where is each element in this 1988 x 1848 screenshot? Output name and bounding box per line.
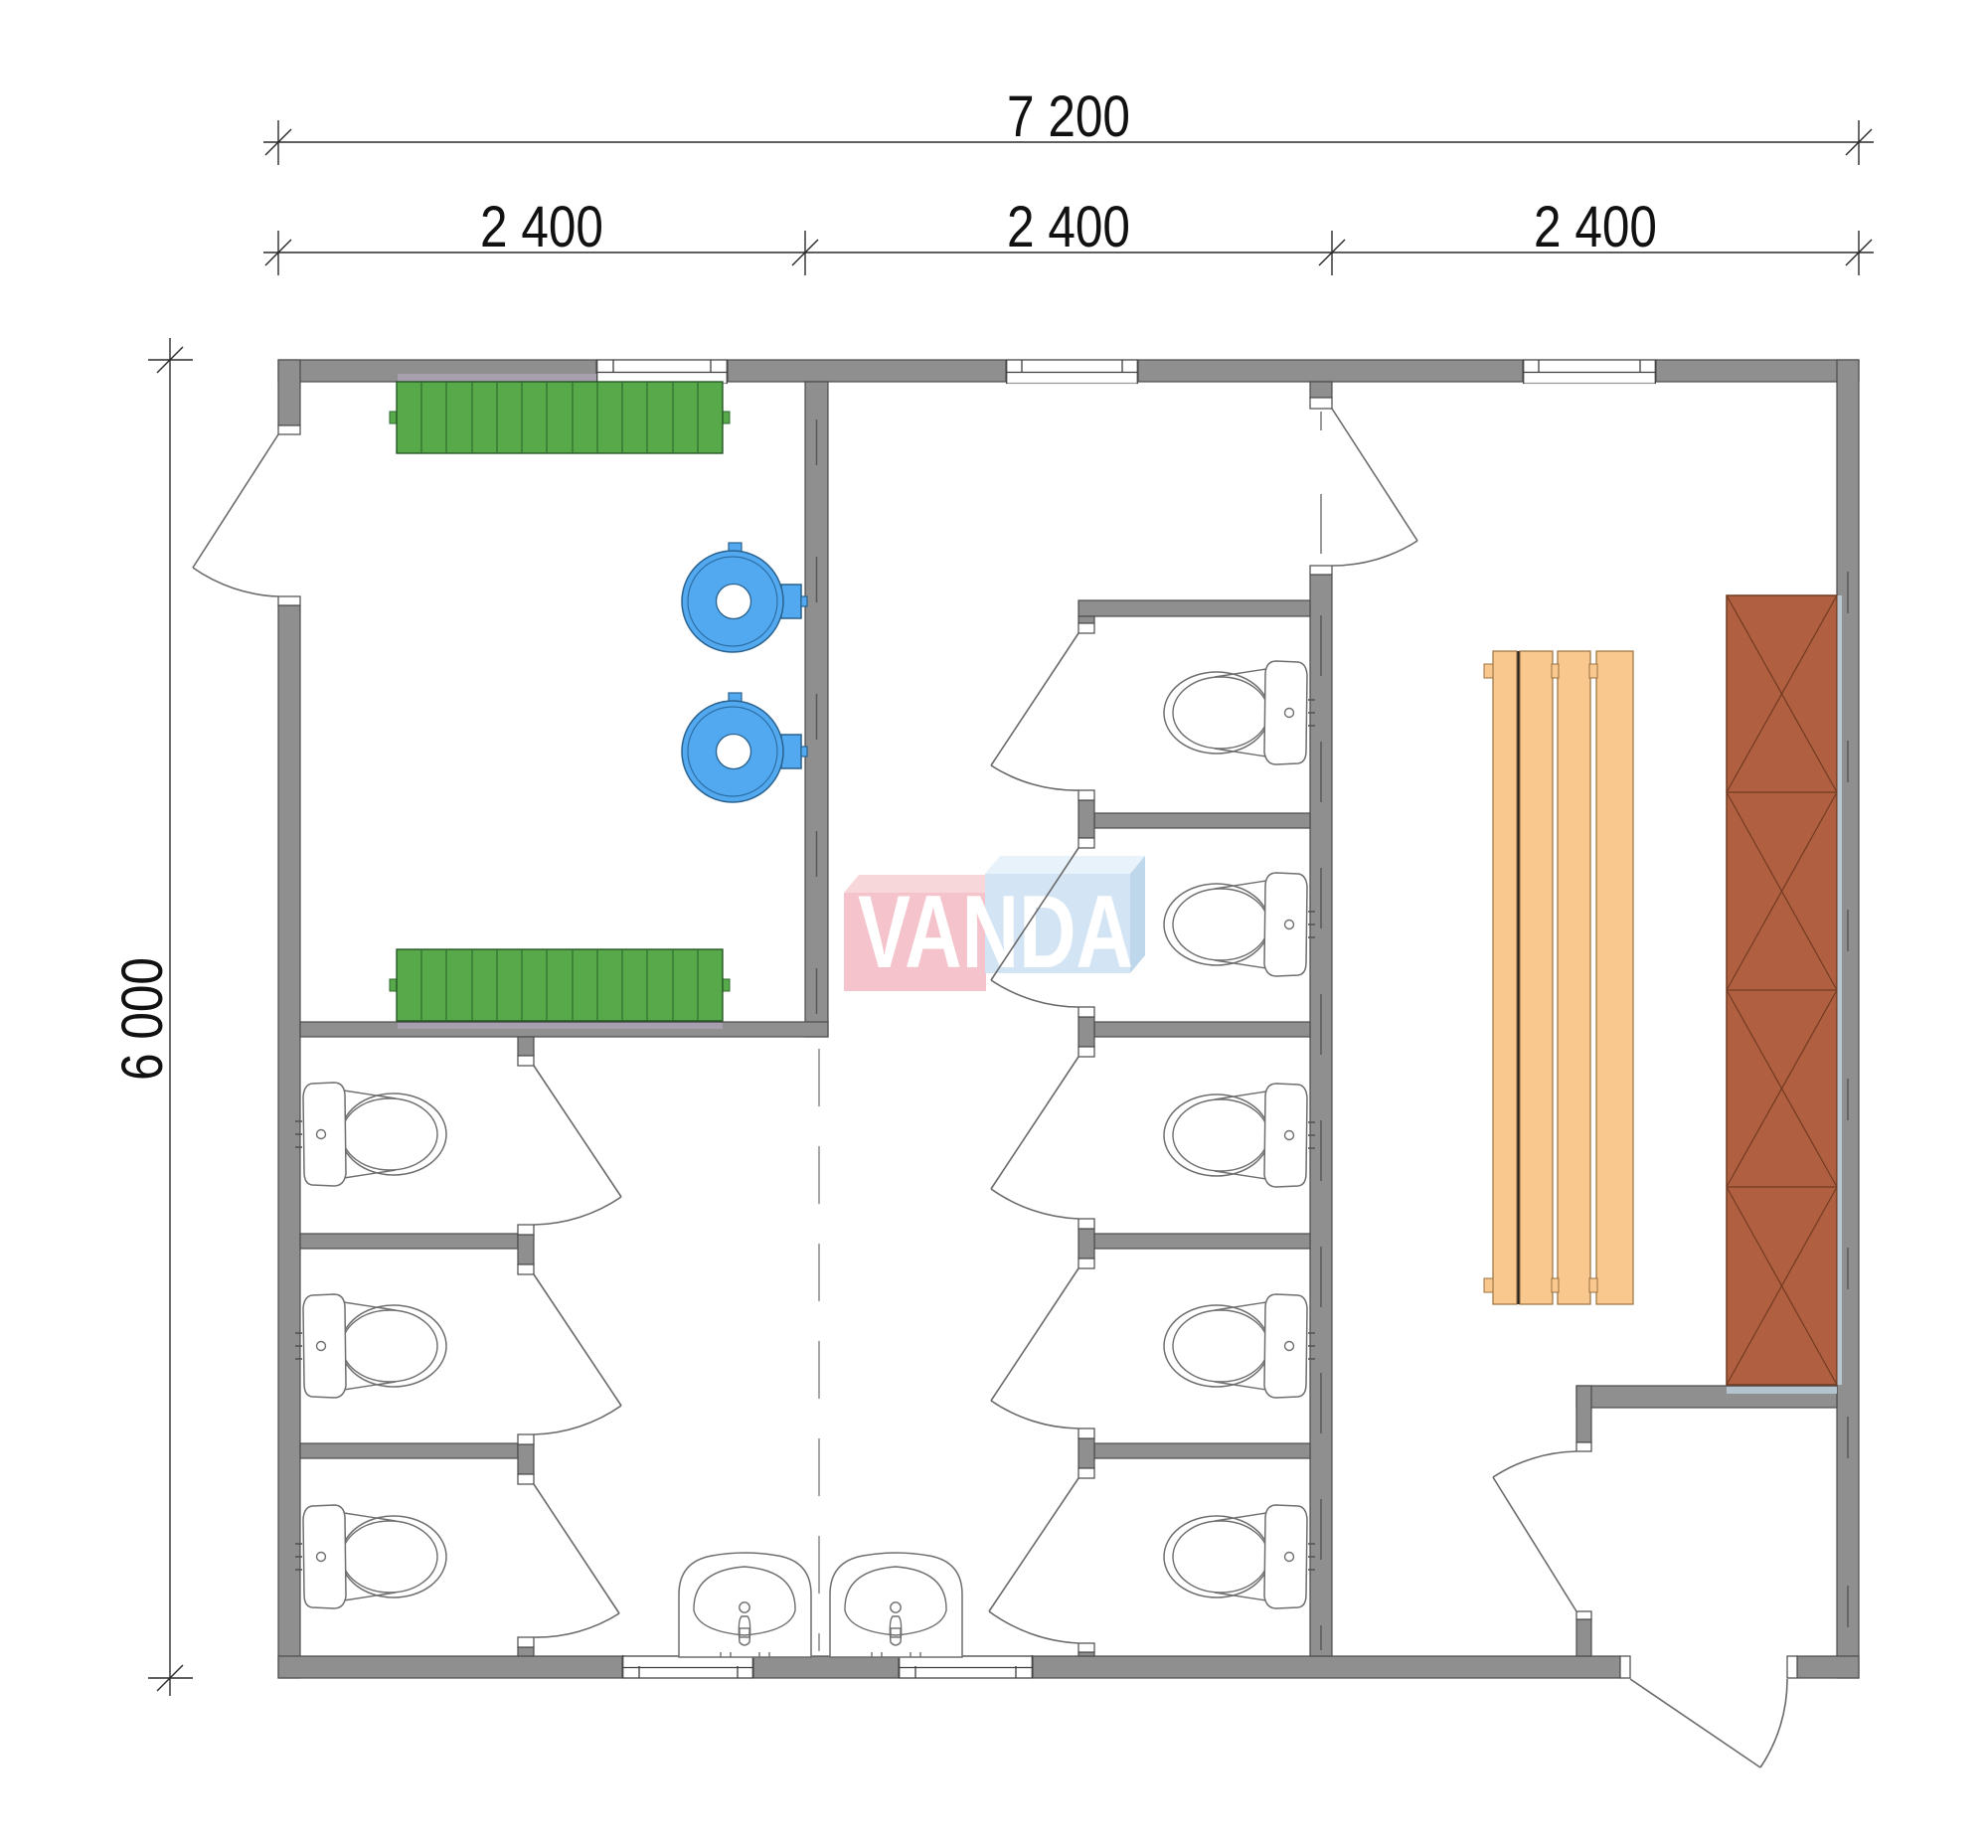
svg-text:2 400: 2 400 — [480, 195, 603, 259]
svg-text:2 400: 2 400 — [1007, 195, 1130, 259]
svg-text:2 400: 2 400 — [1534, 195, 1657, 259]
svg-text:7 200: 7 200 — [1007, 84, 1130, 149]
svg-text:6 000: 6 000 — [110, 957, 175, 1081]
